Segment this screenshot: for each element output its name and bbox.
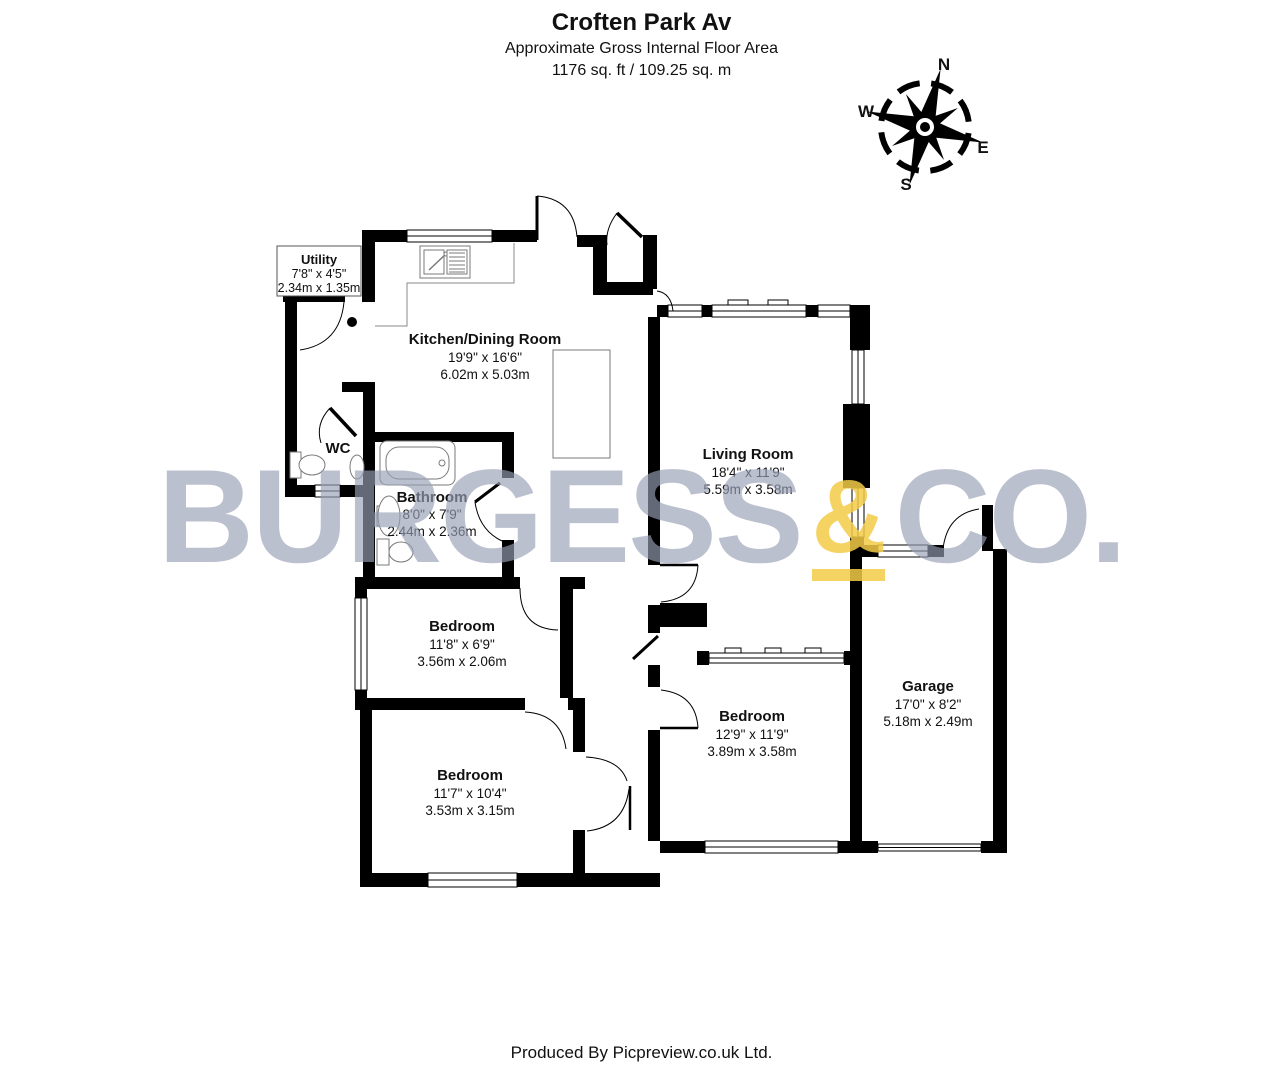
door-bedroom-mid — [520, 588, 558, 630]
producer-credit: Produced By Picpreview.co.uk Ltd. — [0, 1043, 1283, 1063]
svg-text:WC: WC — [326, 440, 351, 457]
bathroom-toilet-icon — [377, 539, 413, 565]
svg-text:6.02m x 5.03m: 6.02m x 5.03m — [440, 367, 529, 382]
kitchen-sink-icon — [420, 246, 470, 278]
svg-text:11'7" x 10'4": 11'7" x 10'4" — [433, 786, 506, 801]
door-living — [660, 565, 698, 602]
door-front-right — [607, 213, 642, 245]
utility-name: Utility — [301, 252, 338, 267]
compass-east-label: E — [977, 138, 988, 157]
svg-text:Kitchen/Dining Room: Kitchen/Dining Room — [409, 331, 562, 348]
compass-west-label: W — [858, 102, 875, 121]
svg-text:Living Room: Living Room — [703, 446, 794, 463]
svg-text:Bedroom: Bedroom — [719, 708, 785, 725]
svg-text:8'0" x 7'9": 8'0" x 7'9" — [402, 507, 461, 522]
svg-text:Bedroom: Bedroom — [437, 767, 503, 784]
svg-text:Garage: Garage — [902, 678, 954, 695]
window-bedroom-right-glazed-top — [709, 648, 844, 663]
svg-text:5.18m x 2.49m: 5.18m x 2.49m — [883, 714, 972, 729]
compass-rose-icon: N E S W — [852, 54, 999, 201]
window-rear-porch — [878, 545, 928, 557]
room-label-garage: Garage 17'0" x 8'2" 5.18m x 2.49m — [883, 678, 972, 729]
door-bedroom-right — [633, 636, 698, 728]
floorplan-page: Croften Park Av Approximate Gross Intern… — [0, 0, 1283, 1080]
utility-metric: 2.34m x 1.35m — [278, 281, 361, 295]
window-bedroom-left-bottom — [428, 873, 517, 887]
door-hall-rear — [586, 757, 630, 831]
compass-south-label: S — [900, 175, 911, 194]
room-label-bedroom-mid: Bedroom 11'8" x 6'9" 3.56m x 2.06m — [417, 618, 506, 669]
window-wc-bottom — [315, 485, 340, 497]
room-label-bedroom-left: Bedroom 11'7" x 10'4" 3.53m x 3.15m — [425, 767, 514, 818]
floorplan-drawing: Utility 7'8" x 4'5" 2.34m x 1.35m Kitche… — [0, 0, 1283, 1080]
utility-imperial: 7'8" x 4'5" — [292, 267, 347, 281]
window-bedroom-mid-left — [355, 598, 367, 690]
door-bathroom — [475, 483, 502, 541]
room-label-bathroom: Bathroom 8'0" x 7'9" 2.44m x 2.36m — [387, 489, 476, 539]
svg-text:3.89m x 3.58m: 3.89m x 3.58m — [707, 744, 796, 759]
svg-text:Bathroom: Bathroom — [397, 489, 468, 506]
door-front-left — [537, 196, 577, 240]
svg-text:17'0" x 8'2": 17'0" x 8'2" — [895, 697, 962, 712]
window-living-top-center — [712, 300, 806, 317]
door-utility — [300, 302, 357, 350]
svg-text:3.56m x 2.06m: 3.56m x 2.06m — [417, 654, 506, 669]
bathtub-icon — [380, 441, 455, 485]
compass-north-label: N — [938, 55, 950, 74]
room-label-living: Living Room 18'4" x 11'9" 5.59m x 3.58m — [703, 446, 794, 497]
window-kitchen-top — [407, 230, 492, 242]
svg-text:5.59m x 3.58m: 5.59m x 3.58m — [703, 482, 792, 497]
svg-text:19'9" x 16'6": 19'9" x 16'6" — [448, 350, 522, 365]
window-living-top-right — [818, 305, 850, 317]
svg-text:11'8" x 6'9": 11'8" x 6'9" — [429, 637, 495, 652]
window-living-right-lower — [852, 488, 864, 537]
wc-toilet-icon — [290, 452, 325, 478]
room-label-kitchen: Kitchen/Dining Room 19'9" x 16'6" 6.02m … — [409, 331, 562, 382]
kitchen-island — [553, 350, 610, 458]
room-label-wc: WC — [326, 440, 351, 457]
svg-text:3.53m x 3.15m: 3.53m x 3.15m — [425, 803, 514, 818]
svg-text:12'9" x 11'9": 12'9" x 11'9" — [715, 727, 788, 742]
window-bedroom-right-bottom — [705, 841, 838, 853]
wc-basin-icon — [350, 455, 364, 479]
garage-door-opening — [878, 844, 981, 851]
room-label-bedroom-right: Bedroom 12'9" x 11'9" 3.89m x 3.58m — [707, 708, 796, 759]
svg-text:2.44m x 2.36m: 2.44m x 2.36m — [387, 524, 476, 539]
door-wc — [319, 408, 356, 443]
room-label-utility: Utility 7'8" x 4'5" 2.34m x 1.35m — [277, 246, 361, 296]
window-living-top-left — [668, 305, 702, 317]
svg-text:Bedroom: Bedroom — [429, 618, 495, 635]
door-garage-side — [943, 509, 979, 549]
door-bedroom-left — [525, 712, 566, 749]
window-living-right-upper — [852, 350, 864, 404]
svg-text:18'4" x 11'9": 18'4" x 11'9" — [711, 465, 784, 480]
